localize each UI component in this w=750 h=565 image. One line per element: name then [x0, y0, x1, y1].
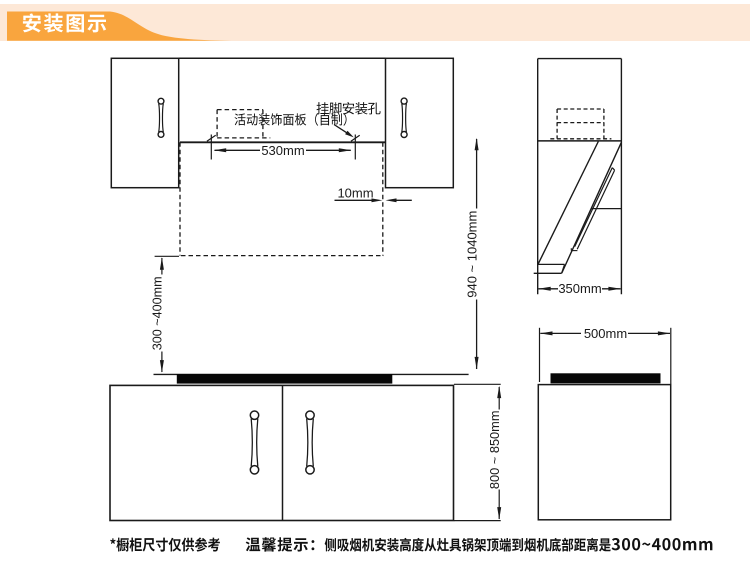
svg-text:300 ~400mm: 300 ~400mm	[151, 276, 165, 350]
svg-text:10mm: 10mm	[337, 186, 373, 201]
svg-text:350mm: 350mm	[558, 281, 601, 296]
svg-text:500mm: 500mm	[584, 326, 627, 341]
svg-text:940 ~ 1040mm: 940 ~ 1040mm	[464, 211, 479, 298]
svg-text:800 ~ 850mm: 800 ~ 850mm	[487, 410, 502, 489]
svg-text:530mm: 530mm	[261, 143, 304, 158]
